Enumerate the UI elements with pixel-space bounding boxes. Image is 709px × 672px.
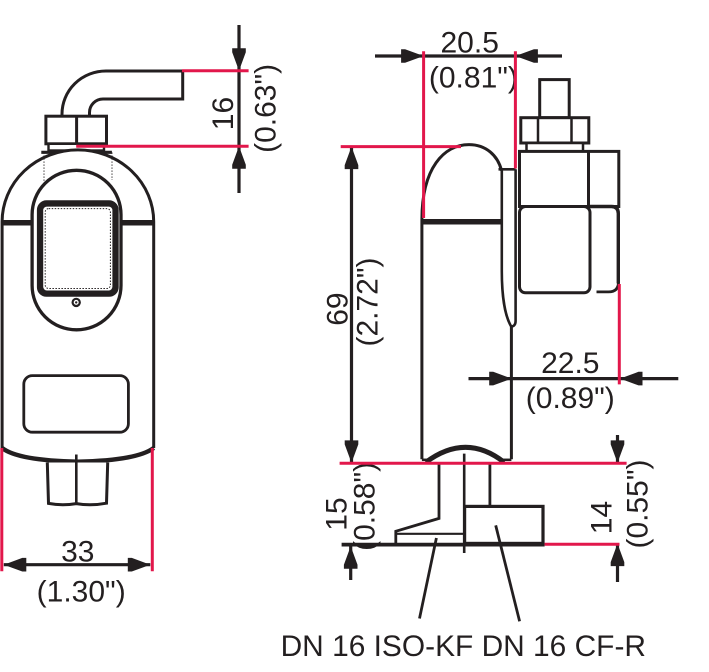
svg-text:22.5: 22.5 [541, 347, 599, 380]
svg-text:(0.63"): (0.63") [250, 64, 283, 153]
svg-text:(0.81"): (0.81") [429, 61, 518, 94]
svg-text:DN 16 ISO-KF DN 16 CF-R: DN 16 ISO-KF DN 16 CF-R [281, 630, 646, 663]
svg-text:(0.58"): (0.58") [349, 462, 382, 551]
svg-text:20.5: 20.5 [441, 26, 499, 59]
svg-text:14: 14 [585, 501, 618, 534]
svg-text:33: 33 [61, 536, 94, 569]
svg-text:69: 69 [322, 292, 355, 325]
svg-text:(0.55"): (0.55") [622, 459, 655, 548]
svg-text:16: 16 [207, 97, 240, 130]
svg-text:(2.72"): (2.72") [352, 257, 385, 346]
svg-text:(1.30"): (1.30") [37, 576, 126, 609]
svg-text:(0.89"): (0.89") [526, 382, 615, 415]
